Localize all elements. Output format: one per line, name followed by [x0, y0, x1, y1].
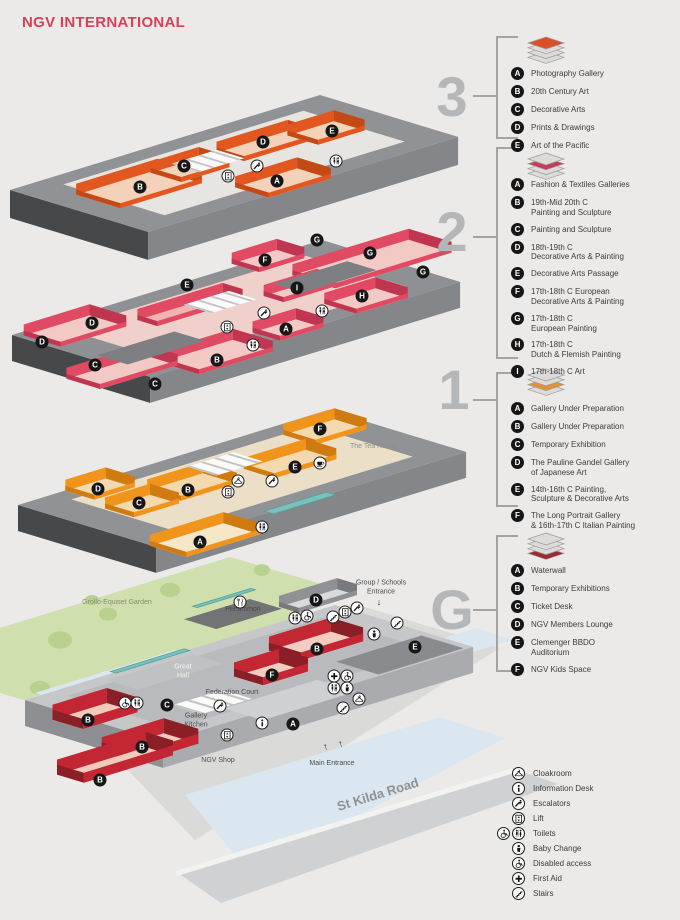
- room-marker: B: [211, 354, 224, 367]
- legend-item-label: Painting and Sculpture: [531, 223, 612, 235]
- map-label: Gallery Kitchen: [184, 713, 207, 730]
- facility-item: Information Desk: [512, 781, 593, 796]
- floor-number-1: 1: [424, 361, 484, 419]
- room-marker: B: [82, 714, 95, 727]
- map-label: Main Entrance: [309, 760, 354, 769]
- room-marker: B: [136, 741, 149, 754]
- garden-tree: [48, 631, 72, 648]
- stairs-icon: [391, 617, 404, 630]
- room-marker: A: [194, 536, 207, 549]
- legend-item-label: Clemenger BBDO Auditorium: [531, 636, 595, 658]
- legend-item-label: Decorative Arts Passage: [531, 267, 619, 279]
- esc-icon: [258, 307, 271, 320]
- facility-label: Escalators: [533, 799, 570, 808]
- legend-key-badge: E: [511, 139, 524, 152]
- legend-item-label: Ticket Desk: [531, 600, 573, 612]
- facility-label: Toilets: [533, 829, 556, 838]
- room-marker: C: [178, 160, 191, 173]
- floor-number-3: 3: [422, 68, 482, 126]
- legend-key-badge: E: [511, 636, 524, 649]
- room-marker: I: [291, 282, 304, 295]
- facility-label: Baby Change: [533, 844, 581, 853]
- legend-key-badge: D: [511, 121, 524, 134]
- facility-item: Cloakroom: [512, 766, 593, 781]
- legend-item: EClemenger BBDO Auditorium: [511, 636, 676, 658]
- legend-key-badge: E: [511, 267, 524, 280]
- legend-floor-2: AFashion & Textiles GalleriesB19th-Mid 2…: [511, 178, 676, 383]
- legend-bracket-line: [473, 95, 496, 97]
- legend-bracket-line: [496, 372, 498, 505]
- room-marker: H: [356, 290, 369, 303]
- legend-item: G17th-18th C European Painting: [511, 312, 676, 334]
- toilets-icon: [289, 612, 302, 625]
- legend-key-badge: B: [511, 85, 524, 98]
- map-label: ↓: [377, 598, 382, 607]
- legend-item: EArt of the Pacific: [511, 139, 676, 152]
- legend-item-label: Temporary Exhibitions: [531, 582, 610, 594]
- facility-label: Lift: [533, 814, 544, 823]
- legend-key-badge: A: [511, 178, 524, 191]
- legend-floor-G: AWaterwallBTemporary ExhibitionsCTicket …: [511, 564, 676, 681]
- room-marker: B: [94, 774, 107, 787]
- legend-item-label: Photography Gallery: [531, 67, 604, 79]
- facility-label: Cloakroom: [533, 769, 572, 778]
- toilets-icon: [256, 521, 269, 534]
- legend-key-badge: C: [511, 223, 524, 236]
- floor-number-2: 2: [422, 203, 482, 261]
- legend-bracket-line: [496, 147, 498, 357]
- legend-item: CTicket Desk: [511, 600, 676, 613]
- hanger-icon: [512, 767, 525, 780]
- facility-label: Disabled access: [533, 859, 591, 868]
- legend-item: B20th Century Art: [511, 85, 676, 98]
- legend-key-badge: F: [511, 285, 524, 298]
- garden-tree: [99, 608, 117, 621]
- room-marker: A: [287, 718, 300, 731]
- legend-key-badge: G: [511, 312, 524, 325]
- toilets-icon: [316, 305, 329, 318]
- facility-item: First Aid: [512, 871, 593, 886]
- garden-tree: [160, 583, 180, 597]
- legend-item: H17th-18th C Dutch & Flemish Painting: [511, 338, 676, 360]
- room-marker: E: [289, 461, 302, 474]
- legend-item: E14th-16th C Painting, Sculpture & Decor…: [511, 483, 676, 505]
- legend-item-label: NGV Members Lounge: [531, 618, 613, 630]
- lift-icon: [512, 812, 525, 825]
- facility-item: Disabled access: [512, 856, 593, 871]
- lift-icon: [222, 486, 235, 499]
- wheel-icon: [512, 857, 525, 870]
- legend-floor-1: AGallery Under PreparationBGallery Under…: [511, 402, 676, 536]
- legend-key-badge: D: [511, 241, 524, 254]
- cross-icon: [512, 872, 525, 885]
- floor-stack-icon: [526, 36, 566, 68]
- room-marker: E: [326, 125, 339, 138]
- legend-item: I17th-18th C Art: [511, 365, 676, 378]
- facility-item: Stairs: [512, 886, 593, 901]
- legend-item: BTemporary Exhibitions: [511, 582, 676, 595]
- legend-item: APhotography Gallery: [511, 67, 676, 80]
- room-marker: D: [310, 594, 323, 607]
- legend-key-badge: C: [511, 438, 524, 451]
- legend-key-badge: E: [511, 483, 524, 496]
- legend-bracket-line: [473, 236, 496, 238]
- legend-key-badge: F: [511, 509, 524, 522]
- room-marker: A: [280, 323, 293, 336]
- room-marker: D: [36, 336, 49, 349]
- hanger-icon: [232, 475, 245, 488]
- map-label: The Tea Room: [350, 443, 396, 452]
- legend-item: CPainting and Sculpture: [511, 223, 676, 236]
- legend-item-label: Fashion & Textiles Galleries: [531, 178, 630, 190]
- legend-item: FThe Long Portrait Gallery & 16th-17th C…: [511, 509, 676, 531]
- legend-bracket-line: [473, 609, 496, 611]
- legend-item-label: 17th-18th C European Painting: [531, 312, 597, 334]
- legend-key-badge: D: [511, 456, 524, 469]
- legend-item: BGallery Under Preparation: [511, 420, 676, 433]
- legend-key-badge: H: [511, 338, 524, 351]
- lift-icon: [222, 170, 235, 183]
- facility-item: Escalators: [512, 796, 593, 811]
- map-label: NGV Shop: [201, 757, 234, 766]
- room-marker: C: [149, 378, 162, 391]
- room-marker: B: [182, 484, 195, 497]
- room-marker: F: [259, 254, 272, 267]
- esc-icon: [512, 797, 525, 810]
- legend-key-badge: C: [511, 103, 524, 116]
- legend-bracket-line: [496, 535, 498, 670]
- room-marker: G: [364, 247, 377, 260]
- legend-item: FNGV Kids Space: [511, 663, 676, 676]
- facilities-legend: CloakroomInformation DeskEscalatorsLiftT…: [512, 766, 593, 901]
- legend-key-badge: B: [511, 420, 524, 433]
- legend-item: CTemporary Exhibition: [511, 438, 676, 451]
- facility-item: Lift: [512, 811, 593, 826]
- room-marker: C: [133, 497, 146, 510]
- room-marker: G: [311, 234, 324, 247]
- legend-key-badge: A: [511, 67, 524, 80]
- room-marker: E: [181, 279, 194, 292]
- floor-stack-icon: [526, 532, 566, 564]
- baby-icon: [512, 842, 525, 855]
- room-marker: D: [86, 317, 99, 330]
- esc-icon: [214, 700, 227, 713]
- legend-item-label: Decorative Arts: [531, 103, 585, 115]
- legend-key-badge: I: [511, 365, 524, 378]
- stairs-icon: [512, 887, 525, 900]
- esc-icon: [251, 160, 264, 173]
- legend-item: DPrints & Drawings: [511, 121, 676, 134]
- room-marker: F: [266, 669, 279, 682]
- legend-item-label: The Long Portrait Gallery & 16th-17th C …: [531, 509, 635, 531]
- map-label: Group / Schools Entrance: [356, 580, 406, 597]
- room-marker: F: [314, 423, 327, 436]
- stairs-icon: [337, 702, 350, 715]
- room-marker: B: [134, 181, 147, 194]
- facility-label: First Aid: [533, 874, 562, 883]
- legend-key-badge: B: [511, 582, 524, 595]
- info-icon: [512, 782, 525, 795]
- wheel-icon: [301, 610, 314, 623]
- hanger-icon: [353, 693, 366, 706]
- toilets-icon: [512, 827, 525, 840]
- legend-item: F17th-18th C European Decorative Arts & …: [511, 285, 676, 307]
- map-label: Great Hall: [174, 664, 192, 681]
- legend-item-label: 17th-18th C Art: [531, 365, 585, 377]
- legend-bracket-line: [473, 399, 496, 401]
- legend-item-label: 20th Century Art: [531, 85, 589, 97]
- legend-item-label: Art of the Pacific: [531, 139, 589, 151]
- legend-item: DThe Pauline Gandel Gallery of Japanese …: [511, 456, 676, 478]
- garden-tree: [254, 564, 270, 576]
- facility-label: Information Desk: [533, 784, 593, 793]
- legend-bracket-line: [496, 36, 518, 38]
- legend-item-label: 17th-18th C Dutch & Flemish Painting: [531, 338, 621, 360]
- legend-key-badge: B: [511, 196, 524, 209]
- lift-icon: [221, 729, 234, 742]
- room-marker: E: [409, 641, 422, 654]
- ngv-floor-guide: NGV INTERNATIONAL 3APhotography GalleryB…: [0, 0, 680, 920]
- legend-key-badge: A: [511, 564, 524, 577]
- facility-item: Baby Change: [512, 841, 593, 856]
- legend-key-badge: F: [511, 663, 524, 676]
- legend-key-badge: C: [511, 600, 524, 613]
- baby-icon: [341, 682, 354, 695]
- legend-item: AWaterwall: [511, 564, 676, 577]
- info-icon: [256, 717, 269, 730]
- legend-floor-3: APhotography GalleryB20th Century ArtCDe…: [511, 67, 676, 157]
- legend-item: EDecorative Arts Passage: [511, 267, 676, 280]
- lift-icon: [221, 321, 234, 334]
- page-title: NGV INTERNATIONAL: [22, 14, 185, 31]
- room-marker: B: [311, 643, 324, 656]
- legend-item-label: Waterwall: [531, 564, 566, 576]
- legend-key-badge: D: [511, 618, 524, 631]
- room-marker: A: [271, 175, 284, 188]
- legend-item-label: Gallery Under Preparation: [531, 402, 624, 414]
- legend-item-label: Prints & Drawings: [531, 121, 595, 133]
- wheel-icon: [497, 827, 510, 840]
- legend-item: D18th-19th C Decorative Arts & Painting: [511, 241, 676, 263]
- map-label: Federation Court: [206, 689, 259, 698]
- legend-item-label: 17th-18th C European Decorative Arts & P…: [531, 285, 624, 307]
- legend-item: CDecorative Arts: [511, 103, 676, 116]
- legend-bracket-line: [496, 36, 498, 137]
- facility-item: Toilets: [512, 826, 593, 841]
- fork-icon: [234, 596, 247, 609]
- room-marker: D: [92, 483, 105, 496]
- esc-icon: [351, 602, 364, 615]
- room-marker: G: [417, 266, 430, 279]
- facility-label: Stairs: [533, 889, 553, 898]
- legend-item-label: 19th-Mid 20th C Painting and Sculpture: [531, 196, 612, 218]
- tea-icon: [314, 457, 327, 470]
- legend-item-label: The Pauline Gandel Gallery of Japanese A…: [531, 456, 629, 478]
- legend-item-label: Temporary Exhibition: [531, 438, 606, 450]
- room-marker: C: [89, 359, 102, 372]
- legend-key-badge: A: [511, 402, 524, 415]
- legend-item: DNGV Members Lounge: [511, 618, 676, 631]
- legend-item: AGallery Under Preparation: [511, 402, 676, 415]
- legend-item-label: 14th-16th C Painting, Sculpture & Decora…: [531, 483, 629, 505]
- legend-item: B19th-Mid 20th C Painting and Sculpture: [511, 196, 676, 218]
- room-marker: D: [257, 136, 270, 149]
- room-marker: C: [161, 699, 174, 712]
- toilets-icon: [330, 155, 343, 168]
- toilets-icon: [247, 339, 260, 352]
- toilets-icon: [131, 697, 144, 710]
- toilets-icon: [328, 682, 341, 695]
- legend-item-label: Gallery Under Preparation: [531, 420, 624, 432]
- legend-item: AFashion & Textiles Galleries: [511, 178, 676, 191]
- legend-item-label: 18th-19th C Decorative Arts & Painting: [531, 241, 624, 263]
- map-label: Grollo-Equiset Garden: [82, 599, 152, 608]
- legend-item-label: NGV Kids Space: [531, 663, 591, 675]
- baby-icon: [368, 628, 381, 641]
- esc-icon: [266, 475, 279, 488]
